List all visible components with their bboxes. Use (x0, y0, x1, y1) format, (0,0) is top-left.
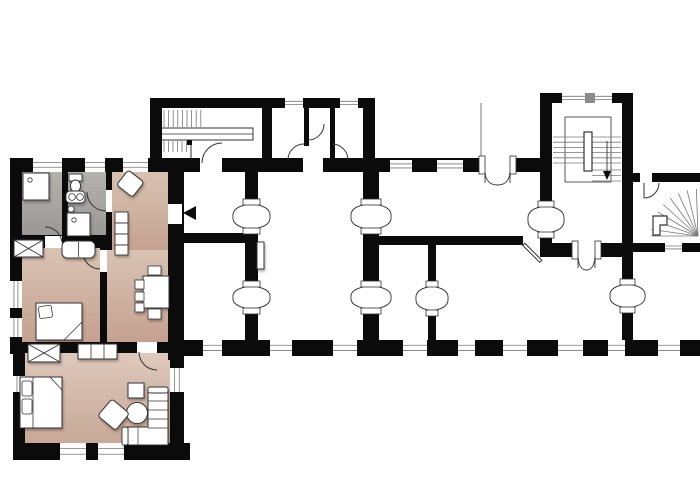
window (285, 98, 303, 108)
bidet (68, 206, 74, 212)
double-swing-door (258, 205, 270, 228)
annex-vestibule-right-wall (330, 108, 335, 162)
double-door (578, 257, 587, 270)
door-jamb (361, 199, 381, 205)
double-swing-door (610, 285, 622, 307)
door-gap (427, 287, 437, 310)
window (558, 340, 583, 356)
door-arc-vestibule-left (288, 144, 304, 160)
wardrobe-cabinet (115, 234, 128, 245)
door-jamb (426, 310, 438, 316)
door-gap (100, 250, 107, 272)
window (10, 281, 22, 308)
door-gap (362, 287, 380, 308)
door-jamb (538, 232, 554, 238)
window (203, 340, 222, 356)
window (85, 158, 105, 172)
door-gap (578, 243, 595, 257)
window (458, 340, 475, 356)
door-gap (244, 205, 259, 228)
window (170, 368, 184, 392)
wardrobe-cabinet (115, 245, 128, 255)
dining-chair (135, 292, 144, 301)
door-gap (640, 173, 652, 182)
apartment-right-wall-upper (168, 158, 184, 360)
door-jamb (243, 228, 260, 234)
door-jamb (361, 228, 381, 234)
double-swing-door (351, 287, 363, 308)
wall-pillar (585, 93, 595, 103)
door-gap (106, 190, 112, 212)
door-jamb (620, 307, 635, 313)
double-swing-door (233, 287, 245, 308)
entrance-door-gap (168, 204, 182, 224)
dining-chair (135, 303, 144, 312)
floor-plan-page (0, 0, 700, 500)
door-gap (244, 287, 259, 308)
shower-tray (67, 213, 90, 236)
window (437, 160, 463, 172)
double-swing-door (436, 287, 448, 310)
double-swing-door (233, 205, 245, 228)
double-door (587, 257, 596, 270)
sideboard (78, 344, 117, 359)
window (123, 158, 148, 172)
wardrobe-cabinet (115, 223, 128, 234)
living-bed-pillow (22, 399, 32, 414)
entrance-arrow-icon (183, 206, 196, 220)
double-swing-door (379, 287, 391, 308)
winder-stair-fan (663, 204, 698, 236)
window (270, 340, 292, 356)
window (33, 158, 62, 172)
stair-b-newel-wall (584, 132, 592, 171)
vestibule-divider-wall (182, 233, 245, 243)
door-gap (539, 207, 553, 232)
vestibule-right-wall (245, 170, 258, 340)
window (60, 443, 86, 460)
sofa-armrest (122, 427, 128, 445)
door-jamb (595, 241, 601, 259)
round-table (127, 403, 148, 424)
door-arc-east-wing (644, 183, 659, 198)
double-swing-door (416, 287, 428, 310)
door-leaf-diagonal (523, 243, 542, 262)
door-jamb (538, 201, 554, 207)
window (658, 340, 680, 356)
layer-annotations (183, 206, 196, 220)
door-jamb (243, 308, 260, 314)
double-swing-door (528, 207, 540, 232)
dining-chair (148, 266, 161, 275)
door-jamb (572, 241, 578, 259)
door-jamb (426, 281, 438, 287)
door-jamb (620, 279, 635, 285)
door-gap (45, 236, 62, 248)
side-table (128, 383, 144, 398)
double-swing-door (379, 205, 391, 228)
winder-stair-wall (653, 216, 667, 235)
door-gap (303, 158, 323, 172)
dining-chair (135, 280, 144, 289)
door-jamb (479, 156, 485, 174)
lower-rooms-top-wall (379, 236, 525, 245)
double-swing-door (633, 285, 645, 307)
window (595, 93, 612, 103)
double-door (498, 172, 511, 185)
toilet-bowl (71, 180, 81, 192)
door-gap (485, 158, 510, 172)
floor-plan-drawing (0, 0, 700, 500)
window (333, 340, 357, 356)
door-gap (137, 342, 157, 353)
window (665, 243, 682, 252)
double-swing-door (258, 287, 270, 308)
door-jamb (510, 156, 516, 174)
window (10, 318, 22, 337)
window (390, 160, 412, 172)
door-jamb (361, 308, 381, 314)
stair-a-newel (187, 140, 192, 145)
door-gap (200, 158, 222, 172)
door-gap (621, 285, 634, 307)
radiator (257, 242, 264, 269)
wardrobe-cabinet (115, 212, 128, 223)
bedroom-pillow (38, 305, 53, 319)
door-gap (362, 205, 380, 228)
window (608, 340, 625, 356)
door-arc-vestibule-inner (308, 124, 324, 140)
living-bed-pillow (22, 381, 32, 396)
window (503, 340, 527, 356)
sofa-armrest (148, 387, 168, 393)
door-jamb (243, 199, 260, 205)
double-swing-door (552, 207, 564, 232)
window (340, 98, 358, 108)
shower (23, 173, 49, 200)
window (403, 340, 427, 356)
door-jamb (243, 281, 260, 287)
window (98, 443, 124, 460)
dining-table (143, 276, 169, 308)
winder-stair-fan (678, 193, 698, 236)
double-swing-door (351, 205, 363, 228)
double-door (485, 172, 498, 185)
hall-right-wall (363, 170, 379, 340)
dining-chair (148, 309, 161, 319)
window (562, 93, 585, 103)
door-jamb (361, 281, 381, 287)
